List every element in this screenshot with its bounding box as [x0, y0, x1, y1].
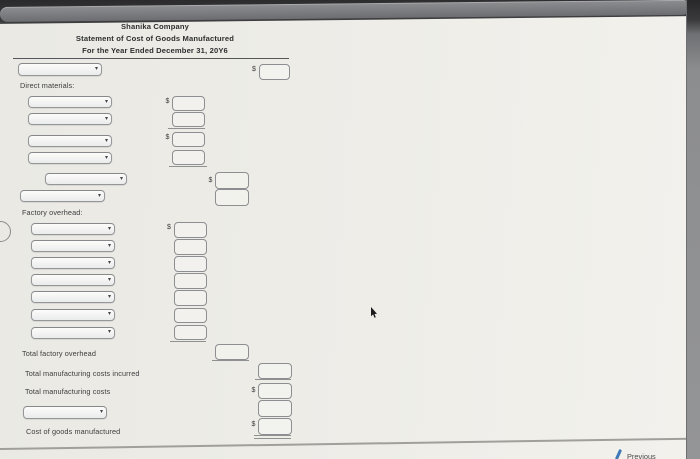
title-row-select[interactable]: ▾	[18, 63, 102, 76]
fo-amount-input-5[interactable]	[174, 290, 207, 306]
fo-amount-input-1[interactable]	[174, 222, 207, 238]
fo-select-3[interactable]: ▾	[31, 257, 115, 269]
chevron-down-icon: ▾	[98, 193, 101, 199]
fo-select-4[interactable]: ▾	[31, 274, 115, 286]
dollar-sign: $	[252, 387, 256, 394]
dm-amount-input-5[interactable]	[215, 172, 249, 189]
screenshot-frame: Shanika Company Statement of Cost of Goo…	[0, 0, 700, 459]
chevron-down-icon: ▾	[95, 66, 98, 72]
dm-select-6[interactable]: ▾	[20, 190, 105, 202]
total-mfg-costs-input[interactable]	[258, 383, 292, 400]
total-mfg-costs-incurred-input[interactable]	[258, 363, 292, 380]
chevron-down-icon: ▾	[108, 294, 111, 300]
chevron-down-icon: ▾	[105, 116, 108, 122]
total-factory-overhead-input[interactable]	[215, 344, 249, 360]
dollar-sign: $	[252, 421, 256, 428]
factory-overhead-label: Factory overhead:	[22, 208, 83, 217]
fo-amount-input-7[interactable]	[174, 325, 207, 341]
chevron-down-icon: ▾	[105, 155, 108, 161]
subtotal-rule	[212, 360, 249, 361]
fo-select-1[interactable]: ▾	[31, 223, 115, 235]
company-name: Shanika Company	[10, 22, 300, 31]
chevron-down-icon: ▾	[100, 409, 103, 415]
dm-select-5[interactable]: ▾	[45, 173, 127, 185]
worksheet-page: Shanika Company Statement of Cost of Goo…	[0, 14, 686, 459]
header-underline	[13, 58, 289, 59]
dollar-sign: $	[166, 134, 170, 141]
fo-amount-input-4[interactable]	[174, 273, 207, 289]
previous-label: Previous	[627, 452, 656, 459]
direct-materials-label: Direct materials:	[20, 81, 74, 90]
title-row-amount-input[interactable]	[259, 64, 290, 80]
chevron-down-icon: ▾	[108, 243, 111, 249]
dollar-sign: $	[166, 98, 170, 105]
dm-amount-input-6[interactable]	[215, 189, 249, 206]
right-edge-strip	[686, 0, 700, 459]
dm-amount-input-2[interactable]	[172, 112, 205, 128]
total-factory-overhead-label: Total factory overhead	[22, 349, 96, 358]
page-bottom-divider	[0, 438, 700, 450]
mouse-cursor-icon	[370, 306, 378, 324]
circle-artifact	[0, 221, 11, 242]
subtotal-rule	[168, 128, 205, 129]
dm-select-1[interactable]: ▾	[28, 96, 112, 108]
subtotal-rule	[170, 341, 206, 342]
chevron-down-icon: ▾	[108, 311, 111, 317]
chevron-down-icon: ▾	[108, 260, 111, 266]
subtotal-rule	[255, 379, 291, 380]
dm-select-3[interactable]: ▾	[28, 135, 112, 147]
chevron-down-icon: ▾	[120, 176, 123, 182]
chevron-down-icon: ▾	[108, 329, 111, 335]
fo-amount-input-2[interactable]	[174, 239, 207, 255]
fo-select-6[interactable]: ▾	[31, 309, 115, 321]
fo-amount-input-6[interactable]	[174, 308, 207, 324]
dollar-sign: $	[209, 177, 213, 184]
final-row-amount-input[interactable]	[258, 400, 292, 417]
dm-amount-input-1[interactable]	[172, 96, 205, 112]
chevron-down-icon: ▾	[108, 277, 111, 283]
chevron-down-icon: ▾	[108, 226, 111, 232]
final-row-select[interactable]: ▾	[23, 406, 107, 419]
chevron-down-icon: ▾	[105, 99, 108, 105]
chevron-down-icon: ▾	[105, 138, 108, 144]
dm-amount-input-4[interactable]	[172, 150, 205, 166]
total-mfg-costs-incurred-label: Total manufacturing costs incurred	[25, 369, 140, 378]
subtotal-rule	[169, 166, 207, 167]
double-rule-top	[254, 435, 291, 436]
dm-amount-input-3[interactable]	[172, 132, 205, 148]
dm-select-4[interactable]: ▾	[28, 152, 112, 164]
previous-icon	[615, 449, 622, 459]
dollar-sign: $	[252, 66, 256, 73]
statement-period: For the Year Ended December 31, 20Y6	[10, 46, 300, 55]
dm-select-2[interactable]: ▾	[28, 113, 112, 125]
statement-title: Statement of Cost of Goods Manufactured	[10, 34, 300, 43]
fo-select-7[interactable]: ▾	[31, 327, 115, 339]
double-rule-bottom	[254, 438, 291, 439]
previous-button[interactable]: Previous	[612, 446, 672, 459]
total-mfg-costs-label: Total manufacturing costs	[25, 387, 110, 396]
cost-of-goods-manufactured-label: Cost of goods manufactured	[26, 427, 120, 436]
fo-amount-input-3[interactable]	[174, 256, 207, 272]
fo-select-2[interactable]: ▾	[31, 240, 115, 252]
cost-of-goods-manufactured-input[interactable]	[258, 418, 292, 435]
dollar-sign: $	[167, 224, 171, 231]
fo-select-5[interactable]: ▾	[31, 291, 115, 303]
